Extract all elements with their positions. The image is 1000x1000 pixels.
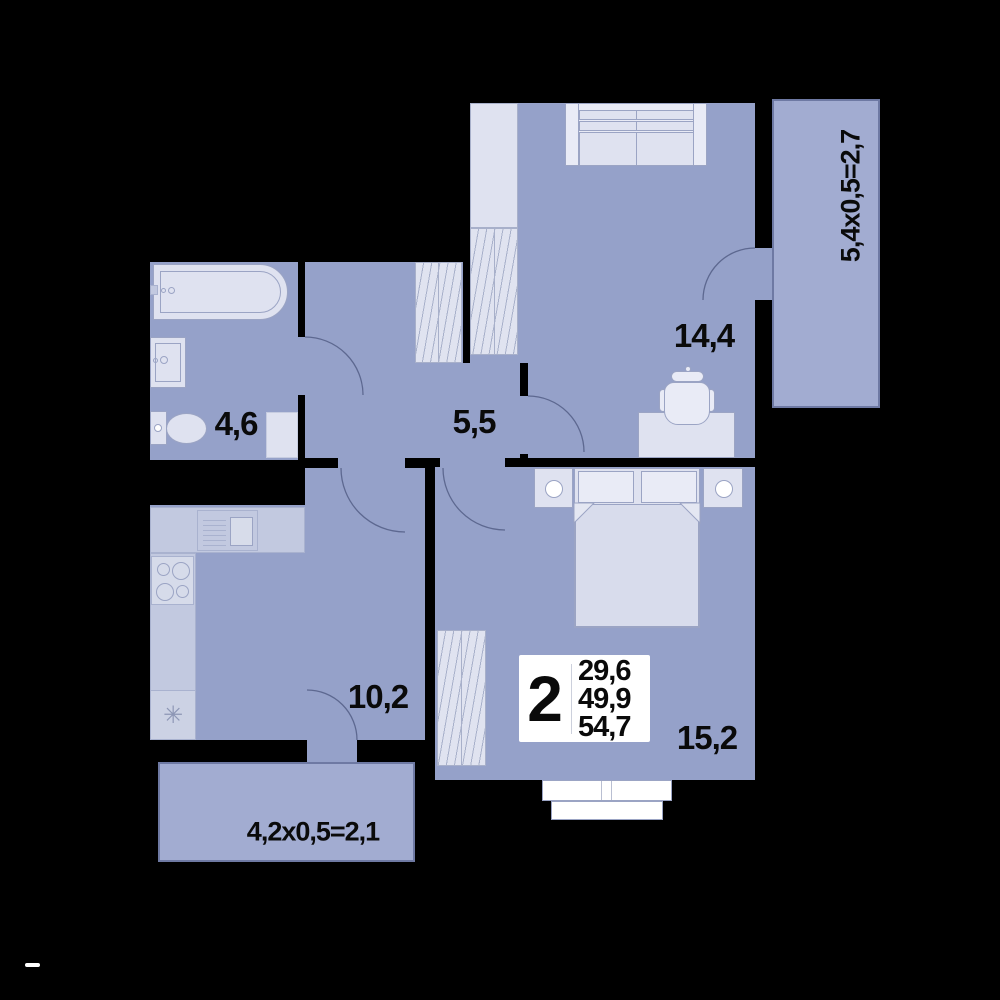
balcony-right-area-label: 5,4x0,5=2,7	[836, 130, 867, 262]
hallway-wardrobe-icon	[415, 262, 462, 363]
doorway-bathroom	[298, 337, 305, 395]
washing-machine-icon	[266, 412, 298, 458]
lamp-icon	[545, 480, 563, 498]
bathtub-tap-icon	[150, 285, 158, 295]
fridge-icon: ✳	[150, 690, 196, 740]
kitchen-sink-drainboard	[203, 516, 226, 546]
sofa-back-cushion	[636, 110, 694, 120]
stove-burner	[157, 563, 170, 576]
bathtub-inner	[160, 271, 281, 313]
sofa-back-cushion	[579, 121, 637, 131]
lamp-icon	[715, 480, 733, 498]
balcony-bottom-area-label: 4,2x0,5=2,1	[247, 817, 379, 848]
stove-burner	[172, 562, 190, 580]
doorway-living-balcony	[755, 248, 772, 300]
nightstand-left-icon	[534, 468, 573, 508]
bedroom-area-label: 15,2	[677, 719, 737, 757]
living-room-area-label: 14,4	[674, 317, 734, 355]
bathroom-area-label: 4,6	[215, 405, 258, 443]
blanket	[575, 504, 699, 627]
sofa-back-cushion	[636, 121, 694, 131]
pillow-icon	[641, 471, 697, 503]
fridge-symbol: ✳	[151, 691, 195, 739]
living-wardrobe-icon	[470, 228, 518, 355]
kitchen-sink-basin	[230, 517, 253, 546]
doorway-bedroom	[440, 456, 505, 469]
office-chair-icon	[664, 382, 710, 425]
nightstand-right-icon	[703, 468, 743, 508]
kitchen-area-label: 10,2	[348, 678, 408, 716]
window-divider	[611, 781, 612, 800]
office-chair-headrest	[671, 371, 704, 382]
doorway-kitchen-balcony	[307, 740, 357, 762]
apartment-area-value: 49,9	[578, 685, 630, 713]
sofa-icon	[565, 103, 707, 166]
bed-icon	[574, 468, 700, 628]
bathroom-sink-basin	[155, 343, 181, 382]
doorway-living	[520, 396, 528, 454]
bathtub-tap-knob	[161, 288, 166, 293]
bedroom-window-sill	[551, 801, 663, 820]
bathtub-drain	[168, 287, 175, 294]
sofa-armrest-right	[693, 104, 706, 165]
sofa-seat-cushion	[636, 132, 694, 166]
floor-plan: ✳ 2 29,6 49,9 54,7	[0, 0, 1000, 1000]
hallway-area-label: 5,5	[453, 403, 496, 441]
toilet-button	[154, 424, 162, 432]
stove-burner	[176, 585, 189, 598]
living-area-value: 29,6	[578, 657, 630, 685]
total-area-value: 54,7	[578, 713, 630, 741]
bedroom-wardrobe-icon	[437, 630, 486, 766]
window-divider	[601, 781, 602, 800]
sink-tap-knob-2	[160, 356, 168, 364]
watermark-dash	[25, 963, 40, 967]
stove-icon	[151, 556, 194, 605]
toilet-bowl-icon	[166, 413, 207, 444]
sink-tap-knob-1	[153, 358, 158, 363]
room-kitchen-upper	[305, 468, 425, 508]
rooms-count: 2	[519, 667, 571, 731]
sofa-back-cushion	[579, 110, 637, 120]
doorway-kitchen	[338, 456, 405, 470]
sofa-armrest-left	[566, 104, 579, 165]
living-closet-icon	[470, 103, 518, 228]
area-values: 29,6 49,9 54,7	[572, 657, 630, 741]
bedroom-window-icon	[542, 780, 672, 801]
stove-burner	[156, 583, 174, 601]
pillow-icon	[578, 471, 634, 503]
sofa-seat-cushion	[579, 132, 637, 166]
apartment-info-badge: 2 29,6 49,9 54,7	[519, 655, 650, 742]
